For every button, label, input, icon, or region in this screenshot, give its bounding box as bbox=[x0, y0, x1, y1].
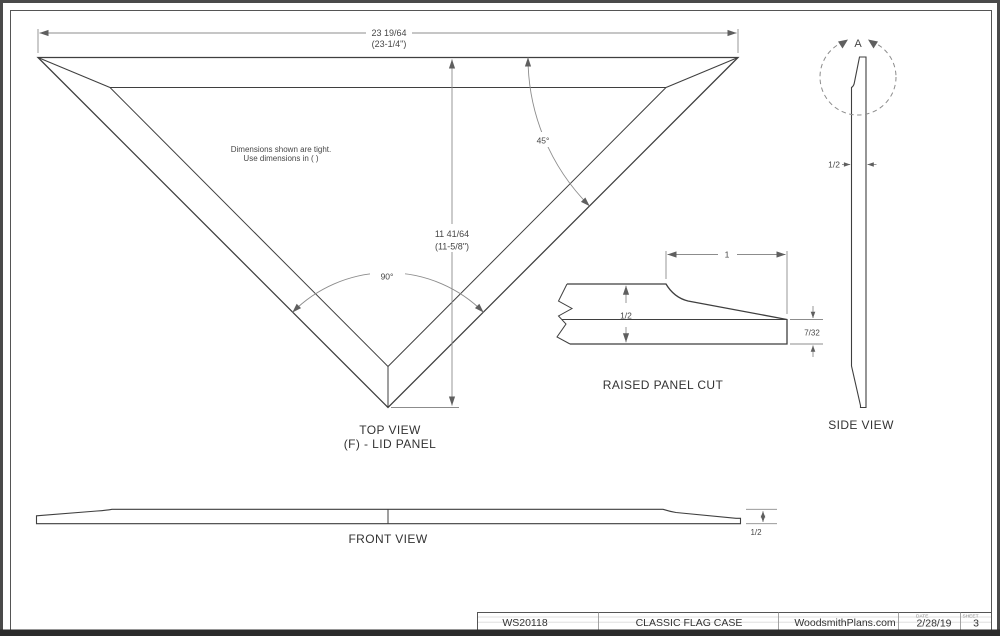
date-label-text: DATE bbox=[916, 614, 928, 620]
rpc-width-dim-text: 1 bbox=[725, 250, 730, 260]
angle-45-text: 45° bbox=[537, 136, 550, 146]
sv-thickness-dim-text: 1/2 bbox=[828, 160, 840, 170]
note-line1: Dimensions shown are tight. bbox=[231, 145, 332, 154]
top-view-label: TOP VIEW bbox=[359, 423, 421, 437]
rpc-edge-dim-text: 7/32 bbox=[804, 329, 820, 338]
note-line2: Use dimensions in ( ) bbox=[243, 154, 318, 163]
website-text: WoodsmithPlans.com bbox=[794, 617, 896, 629]
angle-90-text: 90° bbox=[381, 272, 394, 282]
rpc-thickness-dim-text: 1/2 bbox=[620, 311, 632, 321]
front-view-label: FRONT VIEW bbox=[348, 532, 427, 546]
side-view-label: SIDE VIEW bbox=[828, 418, 894, 432]
top-view-sublabel: (F) - LID PANEL bbox=[344, 437, 436, 451]
sheet-label-text: SHEET bbox=[963, 614, 979, 620]
detail-a-marker-text: A bbox=[854, 38, 862, 50]
fv-thickness-dim-text: 1/2 bbox=[750, 528, 762, 537]
width-dim-alt-text: (23-1/4") bbox=[372, 39, 407, 49]
height-dim-text: 11 41/64 bbox=[435, 229, 469, 239]
width-dim-text: 23 19/64 bbox=[371, 28, 406, 38]
height-dim-alt-text: (11-5/8") bbox=[435, 242, 469, 252]
raised-panel-cut-label: RAISED PANEL CUT bbox=[603, 378, 724, 392]
plan-number-text: WS20118 bbox=[502, 617, 547, 629]
sheet-background bbox=[0, 0, 1000, 636]
technical-drawing-sheet: 23 19/64 (23-1/4") 11 41/64 (11-5/8") 45… bbox=[0, 0, 1000, 636]
bottom-border-bar bbox=[0, 630, 1000, 636]
drawing-title-text: CLASSIC FLAG CASE bbox=[636, 617, 743, 629]
